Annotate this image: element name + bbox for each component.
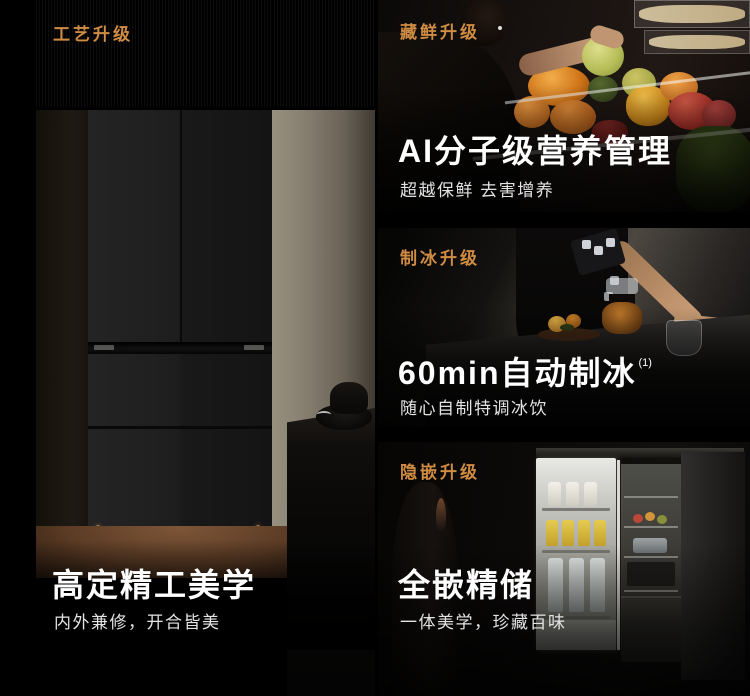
embed-subtitle: 一体美学，珍藏百味 (400, 608, 567, 633)
produce (645, 512, 655, 521)
food-container (644, 30, 750, 54)
ice-cube (606, 238, 615, 247)
ice-title: 60min自动制冰(1) (398, 348, 652, 394)
fridge (88, 110, 272, 526)
face-highlight (436, 498, 446, 536)
earring (498, 26, 502, 30)
fridge-door-seam (180, 110, 182, 344)
fresh-title: AI分子级营养管理 (398, 126, 674, 172)
ice-section: 制冰升级 60min自动制冰(1) 随心自制特调冰饮 (378, 228, 750, 426)
produce (657, 515, 667, 524)
white-bottle (584, 482, 597, 506)
white-bottle (566, 482, 579, 506)
left-black-margin (0, 0, 36, 696)
embed-tag: 隐嵌升级 (400, 458, 480, 483)
embed-section: 隐嵌升级 全嵌精储 一体美学，珍藏百味 (378, 442, 750, 696)
ice-subtitle: 随心自制特调冰饮 (400, 394, 548, 419)
shelf (624, 496, 678, 498)
craft-tag: 工艺升级 (53, 20, 133, 45)
white-bottle (548, 482, 561, 506)
hat-glint (317, 411, 331, 418)
left-cabinet-column (36, 110, 88, 528)
bread (639, 5, 745, 23)
embed-title-text: 全嵌精储 (398, 567, 534, 603)
ice-cube (594, 246, 603, 255)
upper-cabinet-silver-panel (273, 0, 375, 108)
fridge-display-right (244, 345, 264, 350)
juice-bottle (578, 520, 590, 546)
embed-title: 全嵌精储 (398, 560, 536, 606)
fresh-title-text: AI分子级营养管理 (398, 133, 672, 169)
ice-title-sup: (1) (639, 357, 652, 369)
ice-title-text: 60min自动制冰 (398, 355, 637, 391)
craft-section: 工艺升级 高定精工美学 内外兼修，开合皆美 (0, 0, 375, 696)
ice-cube (582, 240, 591, 249)
juice-bottle (546, 520, 558, 546)
fresh-tag: 藏鲜升级 (400, 18, 480, 43)
fresh-section: 藏鲜升级 AI分子级营养管理 超越保鲜 去害增养 (378, 0, 750, 212)
hat-crown (330, 382, 368, 414)
promo-page: 工艺升级 高定精工美学 内外兼修，开合皆美 (0, 0, 750, 696)
fridge-handle-strip (88, 342, 272, 354)
juice-bottle (594, 520, 606, 546)
food-container (634, 0, 750, 28)
fridge-drawer-seam (88, 426, 272, 429)
fresh-subtitle: 超越保鲜 去害增养 (400, 176, 554, 201)
craft-subtitle: 内外兼修，开合皆美 (54, 608, 221, 633)
ice-tag: 制冰升级 (400, 244, 480, 269)
fridge-display-left (94, 345, 114, 350)
juice-bottle (562, 520, 574, 546)
door-rack-rail (542, 508, 610, 511)
produce (633, 514, 643, 523)
iced-drink-top (606, 278, 638, 294)
craft-title: 高定精工美学 (52, 560, 256, 606)
upper-cabinet-panel (36, 0, 273, 108)
bread (649, 35, 745, 49)
shelf (624, 526, 678, 528)
